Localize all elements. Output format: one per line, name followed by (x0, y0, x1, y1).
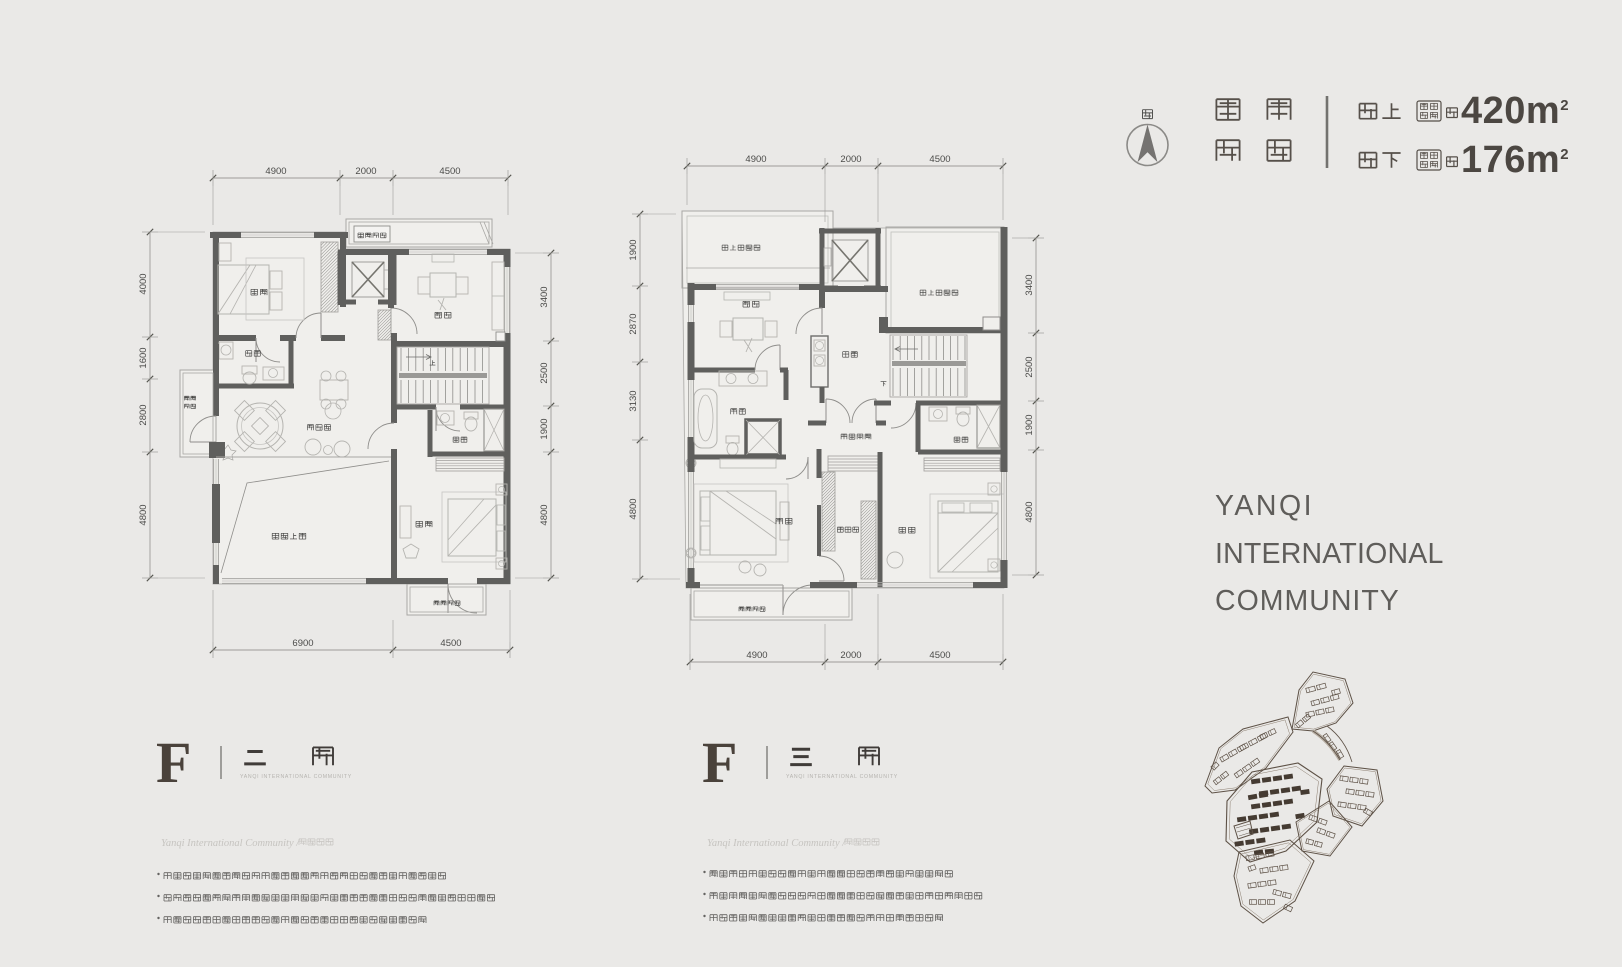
svg-text:INTERNATIONAL: INTERNATIONAL (1215, 538, 1444, 570)
svg-text:YANQI INTERNATIONAL COMMUNITY: YANQI INTERNATIONAL COMMUNITY (786, 774, 898, 780)
svg-text:Yanqi International Community: Yanqi International Community / (161, 838, 300, 849)
svg-text:F: F (702, 730, 737, 795)
svg-text:2500: 2500 (539, 362, 550, 383)
svg-text:YANQI INTERNATIONAL COMMUNITY: YANQI INTERNATIONAL COMMUNITY (240, 774, 352, 780)
svg-text:2800: 2800 (138, 404, 149, 425)
svg-text:3400: 3400 (539, 286, 550, 307)
svg-text:4000: 4000 (138, 273, 149, 294)
svg-text:4800: 4800 (138, 504, 149, 525)
svg-text:1900: 1900 (539, 418, 550, 439)
svg-text:COMMUNITY: COMMUNITY (1215, 585, 1400, 617)
svg-text:1900: 1900 (628, 239, 639, 260)
svg-text:2000: 2000 (355, 166, 376, 177)
svg-text:1600: 1600 (138, 347, 149, 368)
svg-text:4500: 4500 (440, 638, 461, 649)
svg-text:4800: 4800 (1024, 501, 1035, 522)
svg-text:176m2: 176m2 (1461, 139, 1569, 181)
svg-text:4900: 4900 (265, 166, 286, 177)
svg-text:3130: 3130 (628, 390, 639, 411)
svg-text:4800: 4800 (628, 498, 639, 519)
svg-text:3400: 3400 (1024, 274, 1035, 295)
svg-text:YANQI: YANQI (1215, 490, 1314, 522)
svg-text:2870: 2870 (628, 313, 639, 334)
svg-text:4900: 4900 (745, 154, 766, 165)
svg-text:Yanqi International Community: Yanqi International Community / (707, 838, 846, 849)
svg-text:1900: 1900 (1024, 414, 1035, 435)
svg-text:6900: 6900 (292, 638, 313, 649)
svg-text:2500: 2500 (1024, 356, 1035, 377)
svg-text:F: F (156, 730, 191, 795)
svg-text:2000: 2000 (840, 650, 861, 661)
svg-text:4500: 4500 (929, 650, 950, 661)
svg-text:4500: 4500 (929, 154, 950, 165)
svg-text:4900: 4900 (746, 650, 767, 661)
svg-text:4500: 4500 (439, 166, 460, 177)
svg-text:2000: 2000 (840, 154, 861, 165)
svg-text:420m2: 420m2 (1461, 90, 1569, 132)
svg-text:4800: 4800 (539, 504, 550, 525)
